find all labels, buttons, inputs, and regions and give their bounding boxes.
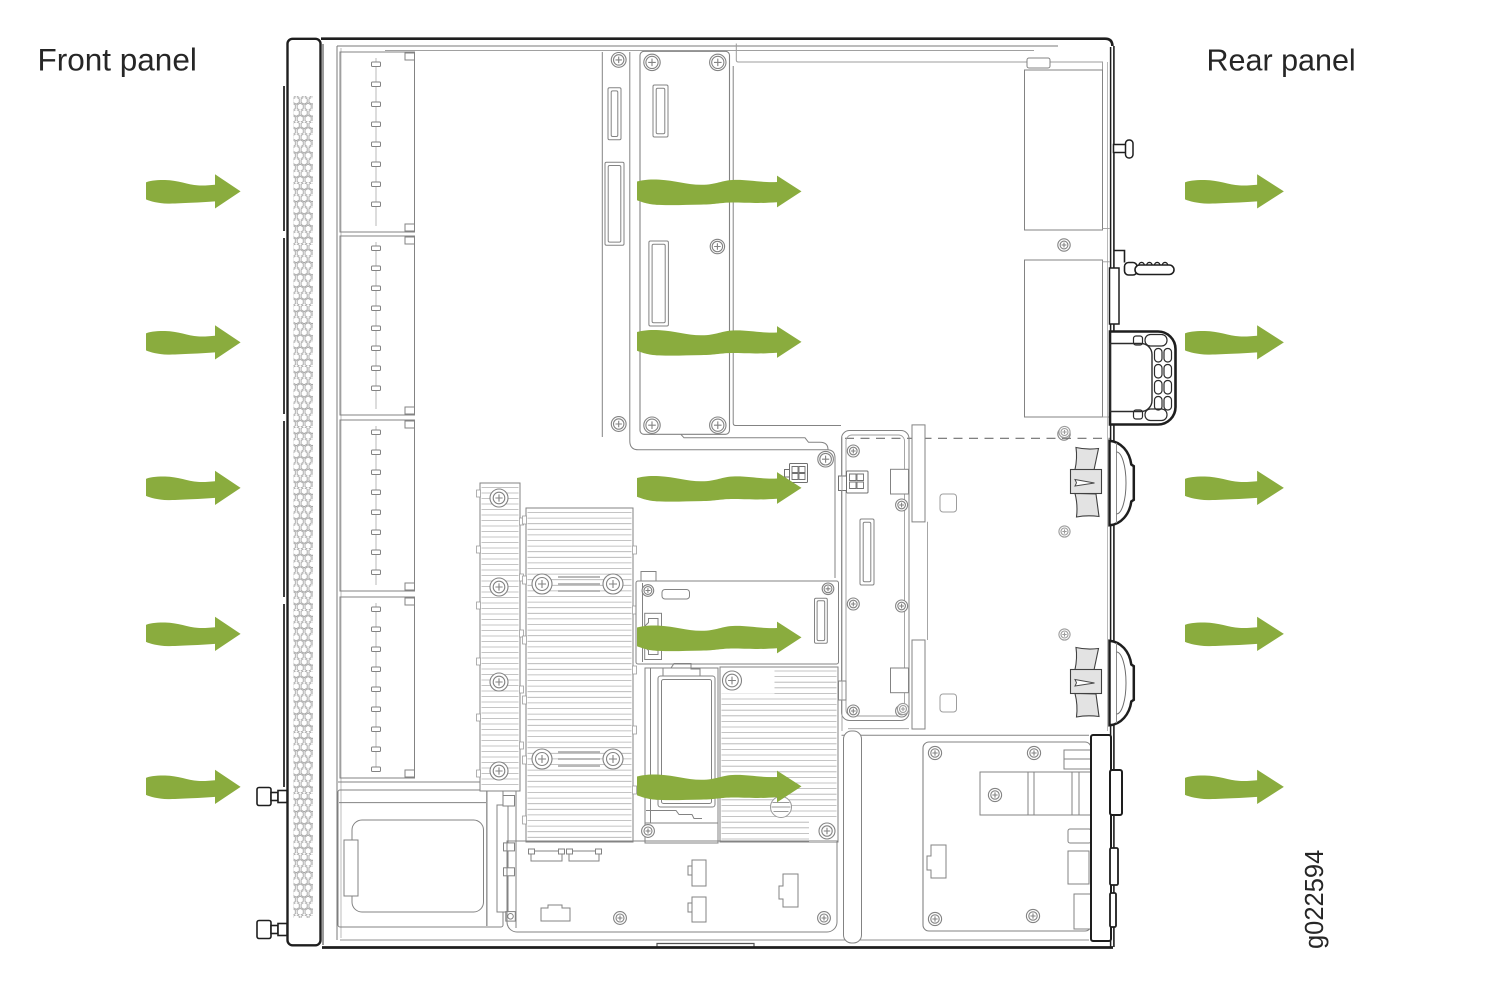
- svg-text:g022594: g022594: [1301, 850, 1329, 949]
- svg-text:Rear panel: Rear panel: [1207, 44, 1356, 78]
- svg-text:Front panel: Front panel: [38, 42, 197, 78]
